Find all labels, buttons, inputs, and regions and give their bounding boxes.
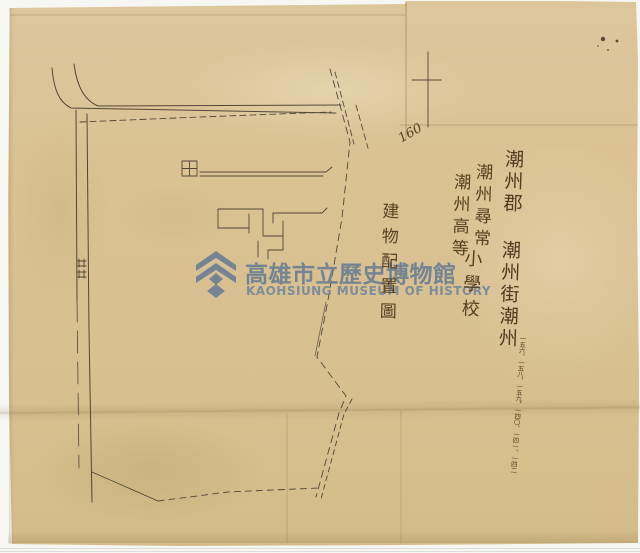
bridge-marks xyxy=(77,259,86,278)
scanned-document-page: 田 高雄市立歷史博物館 KAOHSIUNG MUSEUM OF HISTORY … xyxy=(0,0,640,553)
school-name-suffix: 小學校 xyxy=(459,249,481,325)
ink-dots xyxy=(597,37,618,51)
registration-cross-mark xyxy=(412,52,441,127)
watermark-subtitle: KAOHSIUNG MUSEUM OF HISTORY xyxy=(246,284,491,298)
field-symbol-drawing xyxy=(182,161,332,176)
school-name-column-right: 潮州尋常 xyxy=(470,163,490,252)
drawing-title-column: 建物配置圖 xyxy=(376,202,396,327)
kaohsiung-museum-logo-icon xyxy=(195,251,237,298)
